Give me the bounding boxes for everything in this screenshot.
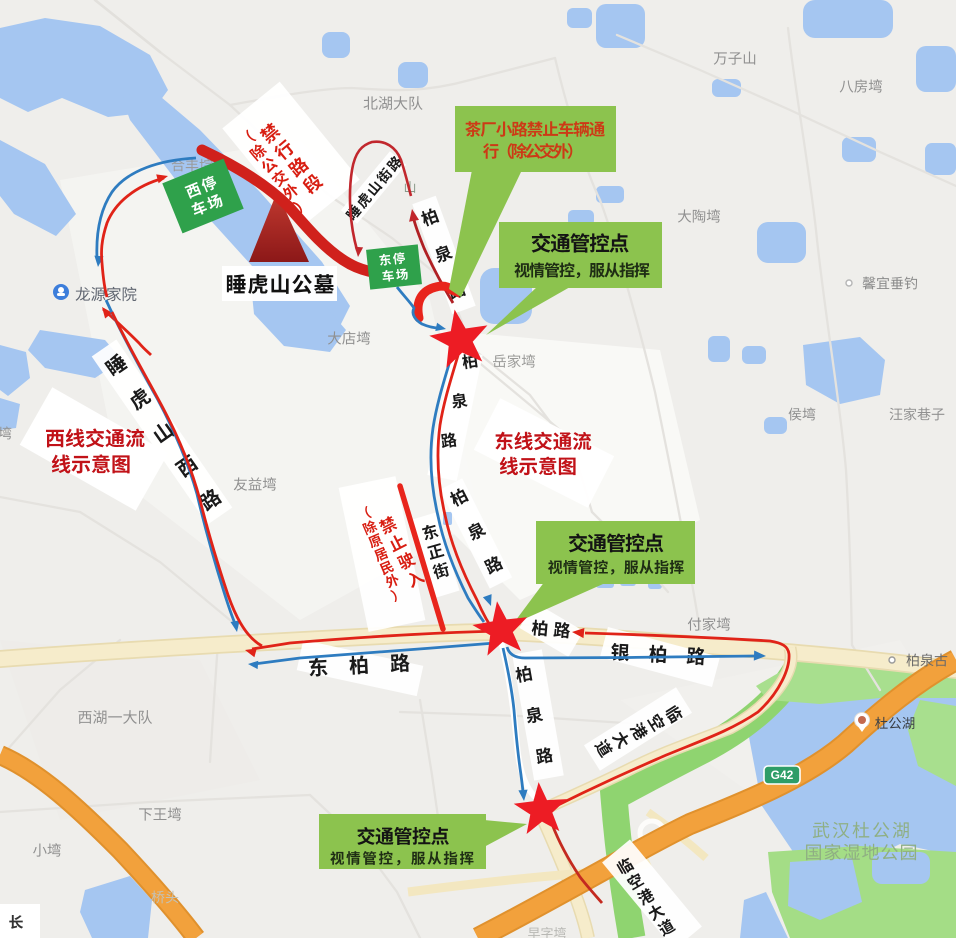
svg-text:G42: G42 [771, 768, 794, 782]
